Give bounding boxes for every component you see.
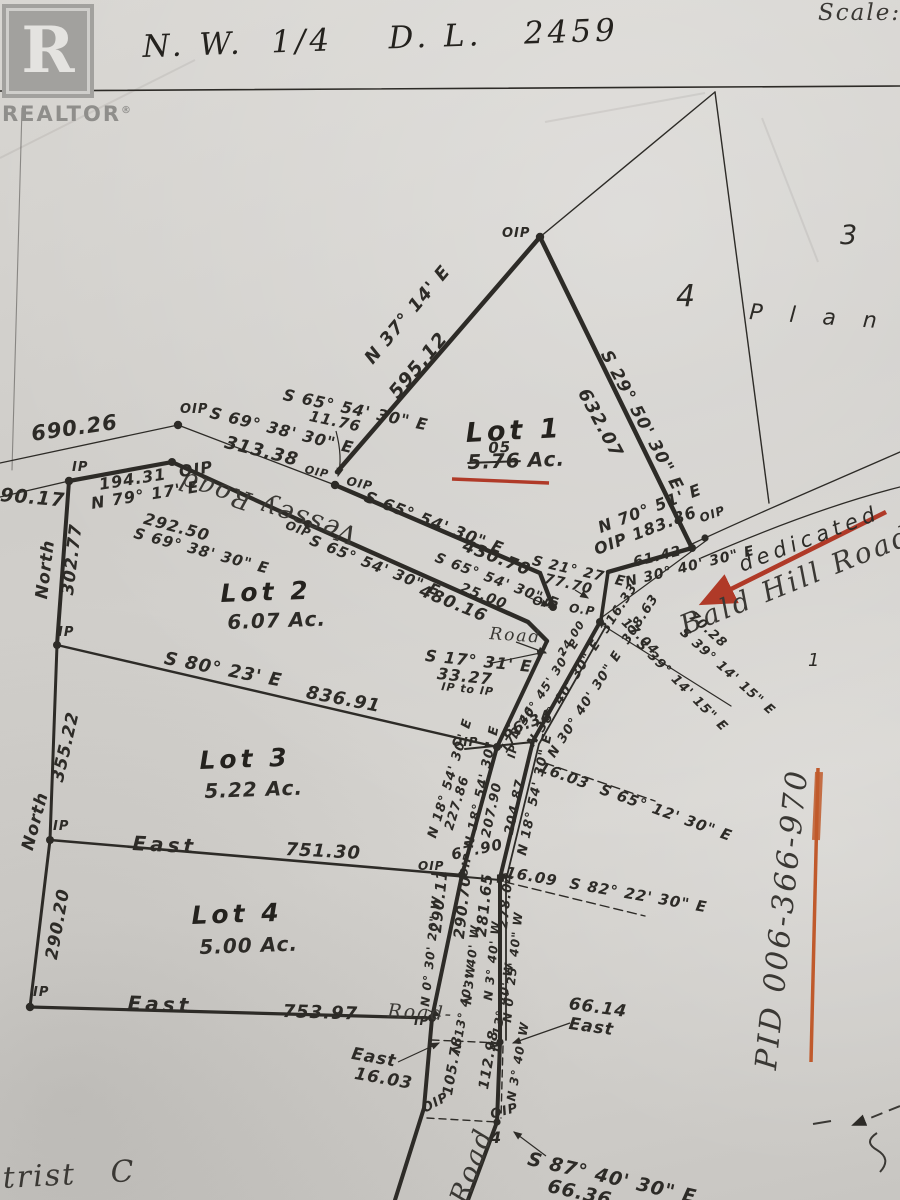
left-page-edge	[12, 108, 22, 470]
plan-number-4: 4	[676, 282, 697, 312]
road-label-junction: Road	[489, 626, 542, 647]
lot4-acreage: 5.00 Ac.	[199, 934, 298, 957]
lot4-south-boundary	[30, 1007, 432, 1018]
dim-751-30: 751.30	[285, 841, 361, 863]
marker-ip-7: IP	[58, 626, 74, 639]
marker-ip-2: IP	[506, 743, 520, 759]
dim-753-97: 753.97	[282, 1003, 358, 1024]
marker-ip-5: IP	[33, 986, 49, 999]
scale-label: Scale:	[818, 2, 900, 25]
marker-ip-1: IP	[72, 461, 88, 474]
dashed-arrow	[853, 1106, 900, 1125]
plan-number-3: 3	[840, 222, 859, 249]
marker-oip-apex: OIP	[502, 227, 530, 240]
bearing-east-lot4: East	[127, 993, 192, 1015]
lot1-acreage-suffix: Ac.	[527, 447, 565, 472]
marker-op: O.P	[568, 602, 596, 618]
lot3-acreage: 5.22 Ac.	[204, 778, 303, 801]
registered-mark-icon: ®	[121, 105, 133, 116]
lot1-acreage: 5.76Ac.	[467, 449, 565, 472]
realtor-wordmark: REALTOR®	[2, 102, 133, 126]
marker-ip-4: IP	[53, 820, 69, 833]
bottom-right-pencil-arrow	[813, 1106, 900, 1172]
short-dash	[813, 1121, 831, 1124]
lot3-lot4-boundary	[50, 840, 462, 875]
lot2-acreage: 6.07 Ac.	[227, 609, 326, 632]
marker-ip-6: IP	[414, 1015, 429, 1027]
realtor-logo-letter: R	[21, 19, 74, 83]
plan-boundary-line	[715, 92, 769, 503]
header-rule	[0, 86, 900, 91]
lot1-acreage-struck: 5.76	[467, 448, 521, 474]
red-underline-lot1	[452, 479, 549, 483]
lot4-name: Lot 4	[191, 900, 283, 928]
bearing-east-lot3: East	[132, 833, 198, 856]
realtor-logo-mark: R	[2, 4, 94, 98]
pid-underline-blotch	[816, 772, 819, 840]
marker-oip-1: OIP	[180, 403, 208, 416]
lot2-name: Lot 2	[220, 578, 312, 606]
dim-90-17: 90.17	[0, 486, 66, 511]
realtor-logo: R REALTOR®	[2, 4, 133, 126]
squiggle-mark	[870, 1133, 885, 1172]
lot1-name: Lot 1	[465, 415, 563, 447]
tie-road-66-36	[427, 1118, 497, 1122]
ref-1: 1	[808, 652, 821, 670]
bottom-4: 4	[490, 1130, 502, 1146]
lot3-name: Lot 3	[199, 745, 291, 773]
leader-east-16	[398, 1043, 439, 1062]
survey-plan-sheet: R REALTOR® N. W. 1/4 D. L. 2459 Scale: 3…	[0, 0, 900, 1200]
north-tie-line	[540, 92, 715, 237]
realtor-word: REALTOR	[2, 102, 121, 126]
bottom-left-partial-text: trist C	[2, 1157, 136, 1194]
